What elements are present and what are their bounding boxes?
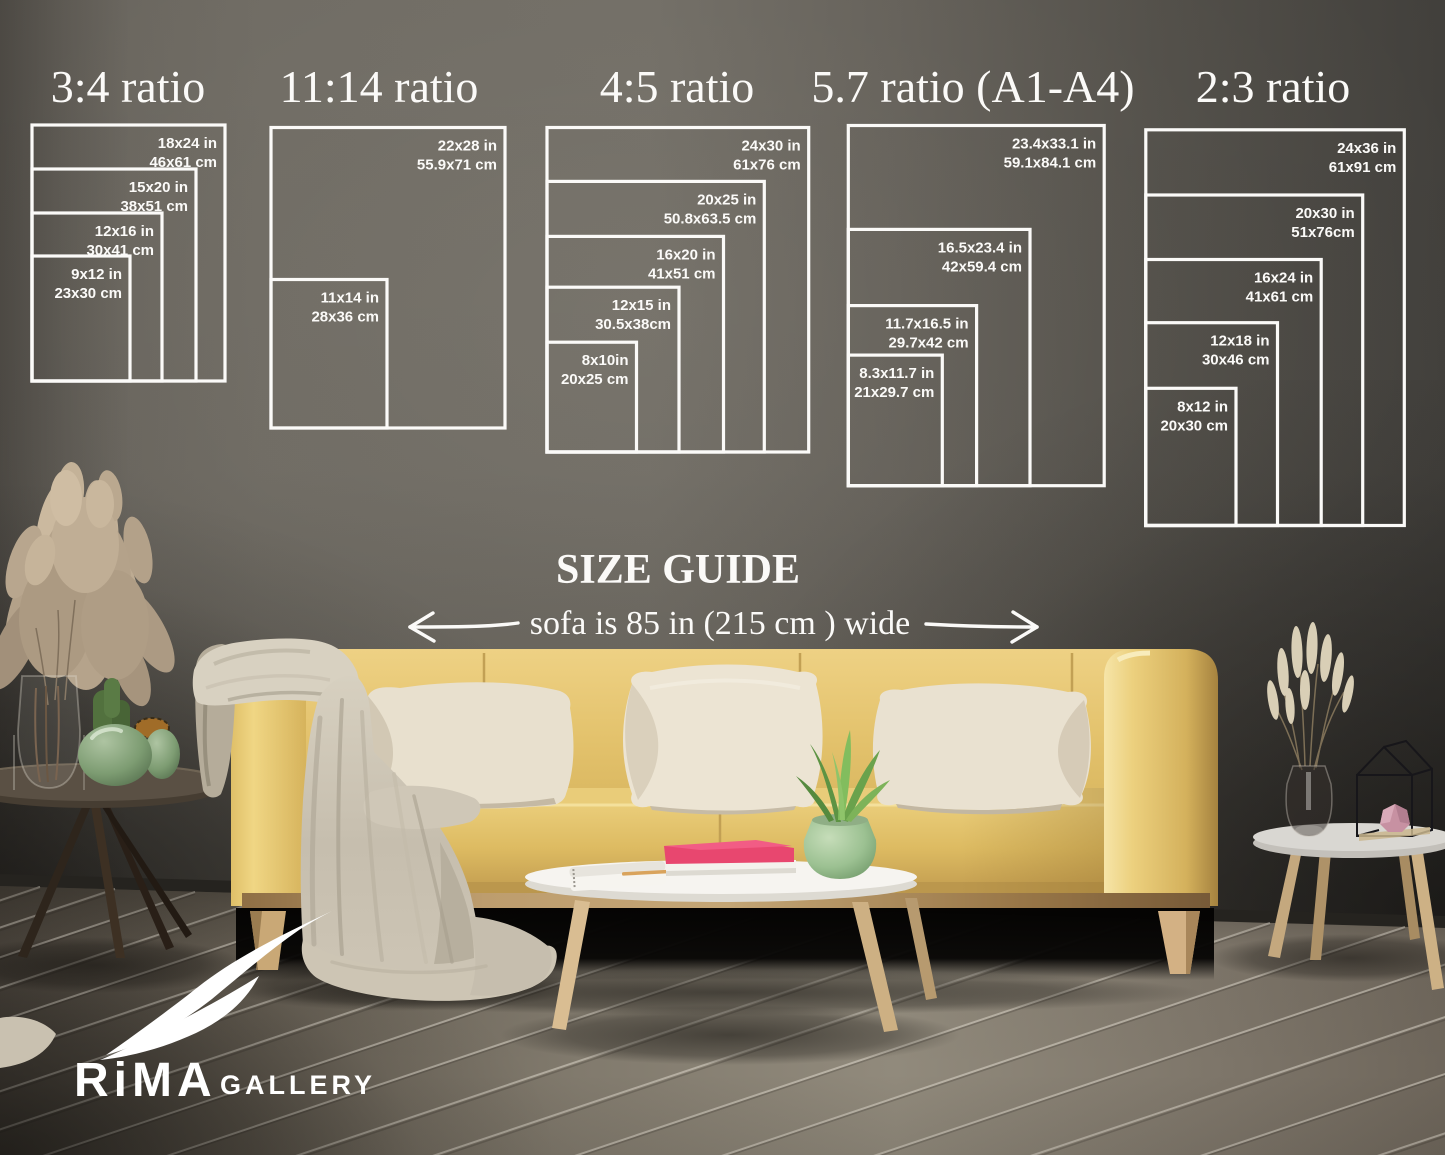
svg-text:15x20 in: 15x20 in [129, 179, 188, 196]
svg-text:20x30 in: 20x30 in [1295, 205, 1354, 222]
svg-text:5.7 ratio (A1-A4): 5.7 ratio (A1-A4) [811, 61, 1134, 112]
svg-text:16.5x23.4 in: 16.5x23.4 in [938, 239, 1022, 256]
svg-text:20x25 cm: 20x25 cm [561, 371, 629, 388]
svg-text:12x16 in: 12x16 in [95, 223, 154, 240]
svg-text:RiMA: RiMA [74, 1054, 217, 1107]
svg-text:22x28 in: 22x28 in [438, 138, 497, 155]
svg-text:55.9x71 cm: 55.9x71 cm [417, 157, 497, 174]
svg-text:12x15 in: 12x15 in [612, 297, 671, 314]
svg-text:30.5x38cm: 30.5x38cm [595, 316, 671, 333]
svg-text:20x25 in: 20x25 in [697, 191, 756, 208]
svg-text:59.1x84.1 cm: 59.1x84.1 cm [1004, 155, 1097, 172]
svg-text:8x10in: 8x10in [582, 352, 629, 369]
svg-text:sofa is 85 in (215 cm ) wide: sofa is 85 in (215 cm ) wide [530, 605, 911, 642]
svg-text:16x24 in: 16x24 in [1254, 270, 1313, 287]
svg-text:9x12 in: 9x12 in [71, 266, 122, 283]
svg-text:24x30 in: 24x30 in [741, 138, 800, 155]
svg-text:20x30 cm: 20x30 cm [1160, 417, 1228, 434]
svg-text:28x36 cm: 28x36 cm [311, 309, 379, 326]
svg-text:8.3x11.7 in: 8.3x11.7 in [859, 365, 934, 382]
svg-text:16x20 in: 16x20 in [656, 246, 715, 263]
svg-text:42x59.4 cm: 42x59.4 cm [942, 258, 1022, 275]
svg-text:61x76 cm: 61x76 cm [733, 157, 801, 174]
svg-text:8x12 in: 8x12 in [1177, 398, 1228, 415]
svg-text:SIZE GUIDE: SIZE GUIDE [556, 547, 800, 593]
svg-text:41x51 cm: 41x51 cm [648, 265, 716, 282]
svg-text:29.7x42 cm: 29.7x42 cm [889, 335, 969, 352]
svg-text:21x29.7 cm: 21x29.7 cm [854, 384, 934, 401]
svg-text:23.4x33.1 in: 23.4x33.1 in [1012, 136, 1096, 153]
svg-text:GALLERY: GALLERY [220, 1070, 376, 1100]
svg-text:11x14 in: 11x14 in [321, 290, 379, 307]
svg-text:24x36 in: 24x36 in [1337, 140, 1396, 157]
svg-text:51x76cm: 51x76cm [1291, 224, 1354, 241]
svg-text:30x46 cm: 30x46 cm [1202, 352, 1270, 369]
svg-text:4:5 ratio: 4:5 ratio [600, 61, 755, 112]
svg-text:41x61 cm: 41x61 cm [1246, 289, 1314, 306]
svg-text:61x91 cm: 61x91 cm [1329, 159, 1397, 176]
svg-text:18x24 in: 18x24 in [158, 135, 217, 152]
svg-text:23x30 cm: 23x30 cm [54, 285, 122, 302]
svg-text:3:4 ratio: 3:4 ratio [51, 61, 206, 112]
svg-text:11:14 ratio: 11:14 ratio [280, 61, 479, 112]
svg-text:50.8x63.5 cm: 50.8x63.5 cm [664, 210, 757, 227]
svg-text:2:3 ratio: 2:3 ratio [1196, 61, 1351, 112]
svg-text:11.7x16.5 in: 11.7x16.5 in [885, 316, 968, 333]
svg-text:12x18 in: 12x18 in [1210, 333, 1269, 350]
